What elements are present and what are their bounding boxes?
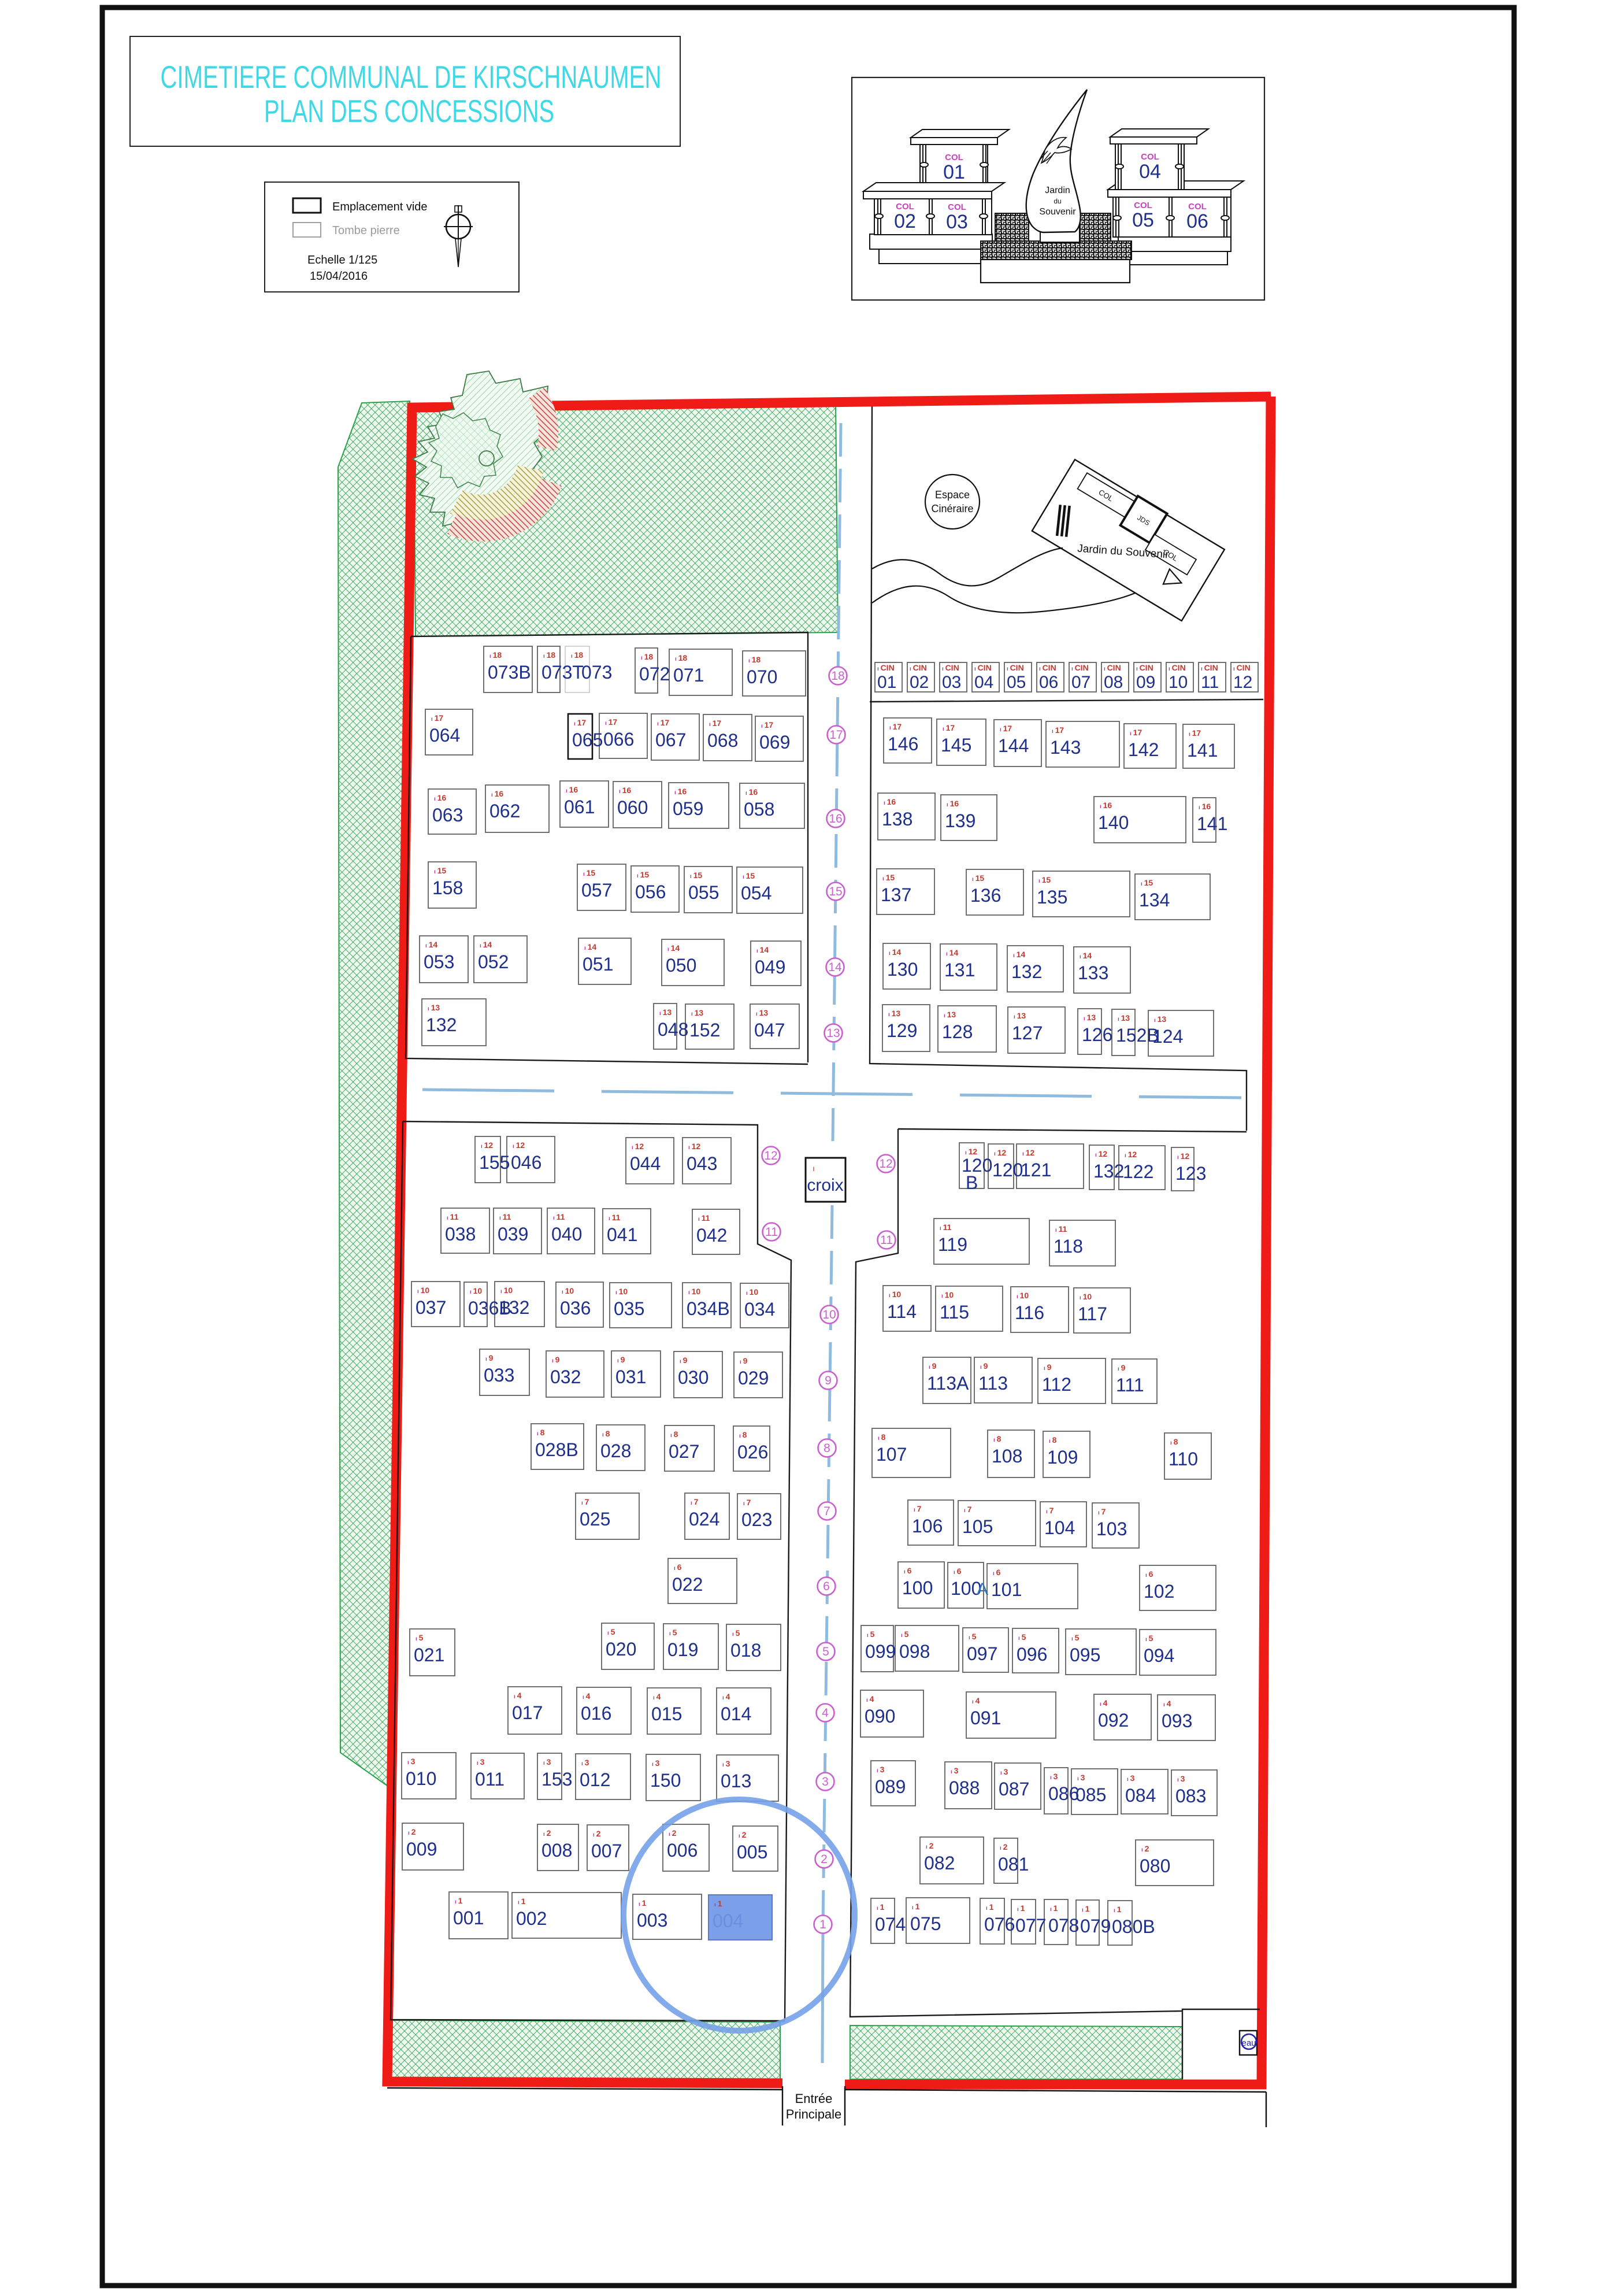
svg-text:021: 021: [414, 1645, 444, 1665]
svg-text:133: 133: [1078, 962, 1108, 983]
svg-text:08: 08: [1104, 673, 1123, 692]
svg-text:115: 115: [940, 1302, 969, 1323]
svg-text:050: 050: [666, 955, 696, 976]
svg-text:047: 047: [754, 1020, 785, 1040]
svg-text:12: 12: [1233, 673, 1252, 692]
svg-text:089: 089: [875, 1776, 906, 1797]
svg-text:103: 103: [1096, 1519, 1127, 1539]
svg-text:04: 04: [974, 673, 993, 692]
svg-text:042: 042: [696, 1225, 727, 1246]
svg-text:141: 141: [1197, 813, 1227, 834]
svg-text:012: 012: [580, 1769, 610, 1790]
svg-text:18: 18: [831, 669, 844, 683]
svg-text:018: 018: [730, 1640, 761, 1661]
svg-text:066: 066: [603, 729, 634, 750]
svg-text:142: 142: [1128, 739, 1159, 760]
svg-text:072: 072: [639, 664, 670, 684]
svg-text:11: 11: [1201, 673, 1219, 692]
svg-text:046: 046: [511, 1152, 541, 1173]
svg-text:11: 11: [765, 1225, 778, 1239]
svg-text:15/04/2016: 15/04/2016: [310, 270, 368, 283]
svg-text:116: 116: [1015, 1302, 1044, 1323]
svg-text:05: 05: [1007, 673, 1026, 692]
svg-text:145: 145: [941, 735, 971, 756]
svg-text:093: 093: [1162, 1710, 1192, 1731]
svg-text:6: 6: [823, 1580, 830, 1593]
svg-text:du: du: [1054, 197, 1061, 205]
svg-text:132: 132: [499, 1297, 529, 1318]
svg-text:14: 14: [828, 961, 842, 974]
svg-text:016: 016: [581, 1703, 611, 1724]
svg-text:095: 095: [1070, 1645, 1100, 1665]
svg-text:Jardin: Jardin: [1045, 186, 1070, 195]
svg-text:059: 059: [673, 798, 703, 819]
svg-text:153: 153: [541, 1769, 572, 1790]
svg-text:CIMETIERE COMMUNAL DE KIRSCHNA: CIMETIERE COMMUNAL DE KIRSCHNAUMEN: [161, 59, 662, 95]
svg-text:121: 121: [1021, 1160, 1051, 1180]
svg-text:092: 092: [1098, 1710, 1129, 1731]
svg-text:118: 118: [1054, 1236, 1083, 1257]
svg-text:B: B: [966, 1172, 978, 1193]
svg-text:15: 15: [829, 885, 842, 898]
svg-text:086: 086: [1048, 1783, 1079, 1804]
svg-text:060: 060: [617, 797, 648, 818]
svg-text:07: 07: [1071, 673, 1090, 692]
svg-text:028B: 028B: [535, 1439, 578, 1460]
svg-text:131: 131: [944, 960, 975, 980]
svg-text:038: 038: [445, 1224, 476, 1245]
svg-text:041: 041: [607, 1224, 637, 1245]
svg-text:074: 074: [875, 1914, 906, 1935]
svg-text:126: 126: [1082, 1024, 1112, 1045]
svg-text:006: 006: [667, 1840, 698, 1861]
svg-text:06: 06: [1039, 673, 1058, 692]
svg-text:080B: 080B: [1112, 1916, 1155, 1937]
svg-text:088: 088: [949, 1777, 980, 1798]
svg-text:128: 128: [942, 1021, 973, 1042]
svg-text:034: 034: [744, 1299, 775, 1320]
svg-text:138: 138: [882, 809, 912, 829]
svg-text:055: 055: [688, 882, 719, 903]
svg-text:5: 5: [822, 1645, 829, 1658]
svg-text:062: 062: [489, 801, 520, 821]
svg-text:112: 112: [1042, 1374, 1071, 1395]
svg-text:124: 124: [1152, 1026, 1183, 1047]
svg-text:129: 129: [886, 1020, 917, 1041]
svg-text:Souvenir: Souvenir: [1039, 207, 1076, 217]
svg-text:eau: eau: [1241, 2038, 1256, 2048]
svg-text:2: 2: [821, 1853, 828, 1866]
svg-text:098: 098: [899, 1641, 930, 1662]
svg-text:Espace: Espace: [935, 489, 970, 501]
svg-text:7: 7: [824, 1505, 830, 1518]
svg-text:014: 014: [721, 1704, 751, 1724]
svg-text:081: 081: [998, 1854, 1029, 1875]
svg-text:104: 104: [1044, 1517, 1075, 1538]
svg-text:051: 051: [583, 954, 613, 975]
svg-text:croix: croix: [807, 1176, 843, 1195]
svg-text:008: 008: [541, 1840, 572, 1861]
svg-text:01: 01: [943, 161, 965, 183]
svg-text:034B: 034B: [687, 1298, 730, 1319]
svg-text:9: 9: [825, 1374, 832, 1387]
svg-text:106: 106: [912, 1516, 943, 1536]
svg-text:10: 10: [1169, 673, 1188, 692]
svg-text:16: 16: [829, 812, 842, 825]
svg-text:120: 120: [992, 1160, 1023, 1180]
svg-text:057: 057: [581, 880, 612, 901]
svg-text:087: 087: [999, 1779, 1029, 1799]
svg-text:PLAN DES CONCESSIONS: PLAN DES CONCESSIONS: [264, 93, 554, 129]
svg-text:085: 085: [1075, 1784, 1106, 1805]
svg-text:Entrée: Entrée: [795, 2091, 833, 2106]
svg-text:043: 043: [687, 1153, 717, 1174]
svg-text:048: 048: [658, 1019, 688, 1040]
svg-text:025: 025: [580, 1509, 610, 1530]
svg-text:04: 04: [1139, 161, 1161, 183]
svg-text:130: 130: [887, 959, 918, 980]
svg-text:083: 083: [1175, 1786, 1206, 1806]
svg-text:039: 039: [498, 1224, 528, 1245]
svg-text:Emplacement vide: Emplacement vide: [332, 201, 428, 213]
svg-text:090: 090: [865, 1706, 895, 1727]
svg-text:12: 12: [879, 1157, 892, 1171]
svg-text:068: 068: [707, 730, 738, 751]
svg-text:03: 03: [942, 673, 961, 692]
svg-text:Echelle 1/125: Echelle 1/125: [307, 254, 377, 266]
svg-text:123: 123: [1175, 1163, 1206, 1184]
svg-text:064: 064: [429, 725, 460, 746]
svg-text:10: 10: [822, 1308, 836, 1321]
svg-text:Tombe pierre: Tombe pierre: [332, 224, 400, 237]
svg-text:049: 049: [755, 957, 785, 977]
svg-text:155: 155: [479, 1152, 510, 1173]
svg-text:024: 024: [689, 1509, 719, 1530]
svg-text:101: 101: [991, 1579, 1022, 1600]
svg-text:105: 105: [962, 1516, 993, 1537]
svg-text:096: 096: [1017, 1644, 1047, 1665]
svg-text:035: 035: [614, 1298, 644, 1319]
svg-text:8: 8: [824, 1442, 830, 1455]
svg-text:005: 005: [737, 1842, 767, 1862]
svg-text:002: 002: [516, 1908, 547, 1929]
svg-text:11: 11: [880, 1234, 893, 1247]
svg-text:019: 019: [667, 1639, 698, 1660]
svg-text:097: 097: [967, 1643, 997, 1664]
svg-text:122: 122: [1123, 1161, 1153, 1182]
svg-text:077: 077: [1015, 1915, 1046, 1936]
svg-text:102: 102: [1144, 1581, 1174, 1602]
svg-text:067: 067: [655, 729, 686, 750]
svg-text:013: 013: [721, 1771, 751, 1791]
svg-text:056: 056: [635, 882, 666, 902]
svg-text:070: 070: [747, 666, 777, 687]
svg-text:015: 015: [651, 1704, 682, 1724]
svg-text:031: 031: [615, 1367, 646, 1387]
svg-text:09: 09: [1136, 673, 1155, 692]
svg-text:022: 022: [672, 1574, 703, 1595]
svg-text:136: 136: [970, 885, 1001, 906]
svg-text:109: 109: [1047, 1447, 1078, 1468]
svg-text:114: 114: [887, 1301, 917, 1322]
svg-text:001: 001: [453, 1908, 484, 1928]
svg-text:004: 004: [713, 1910, 743, 1931]
svg-text:100: 100: [902, 1577, 933, 1598]
svg-text:073B: 073B: [488, 662, 531, 683]
svg-text:A: A: [977, 1580, 988, 1599]
svg-text:032: 032: [550, 1367, 581, 1387]
svg-text:037: 037: [416, 1297, 446, 1318]
svg-text:152: 152: [689, 1020, 720, 1040]
svg-text:084: 084: [1125, 1785, 1156, 1806]
svg-text:044: 044: [630, 1153, 661, 1174]
svg-text:020: 020: [606, 1639, 636, 1660]
svg-text:029: 029: [738, 1368, 769, 1388]
svg-text:113: 113: [978, 1373, 1008, 1394]
svg-text:111: 111: [1116, 1375, 1144, 1395]
svg-text:073: 073: [581, 662, 612, 683]
svg-text:117: 117: [1078, 1303, 1107, 1324]
svg-text:107: 107: [876, 1444, 907, 1465]
svg-text:027: 027: [669, 1441, 699, 1462]
svg-text:033: 033: [484, 1365, 514, 1386]
svg-text:02: 02: [910, 673, 929, 692]
svg-text:053: 053: [424, 951, 454, 972]
svg-text:023: 023: [741, 1509, 772, 1530]
svg-text:144: 144: [998, 735, 1029, 756]
svg-text:140: 140: [1098, 812, 1129, 833]
svg-text:010: 010: [406, 1768, 436, 1789]
svg-text:137: 137: [881, 884, 911, 905]
svg-text:007: 007: [591, 1840, 622, 1861]
svg-text:069: 069: [759, 732, 790, 753]
svg-text:Cinéraire: Cinéraire: [931, 503, 973, 514]
svg-text:ı: ı: [813, 1164, 815, 1173]
svg-text:063: 063: [432, 805, 463, 825]
svg-text:108: 108: [992, 1446, 1022, 1467]
svg-text:080: 080: [1140, 1856, 1170, 1876]
svg-text:06: 06: [1186, 210, 1208, 232]
svg-text:05: 05: [1132, 209, 1154, 231]
svg-text:091: 091: [970, 1708, 1001, 1728]
svg-text:03: 03: [946, 211, 968, 233]
svg-text:134: 134: [1139, 890, 1170, 910]
svg-text:003: 003: [637, 1910, 667, 1931]
svg-text:13: 13: [826, 1027, 840, 1040]
svg-text:058: 058: [744, 799, 774, 820]
svg-text:071: 071: [673, 665, 704, 686]
svg-text:132: 132: [1093, 1161, 1124, 1182]
svg-text:127: 127: [1012, 1023, 1043, 1043]
svg-text:036: 036: [560, 1298, 591, 1319]
svg-text:073T: 073T: [541, 662, 584, 683]
svg-text:075: 075: [910, 1913, 941, 1934]
svg-text:054: 054: [741, 883, 771, 903]
svg-text:011: 011: [475, 1769, 505, 1790]
svg-text:030: 030: [678, 1367, 709, 1388]
svg-text:1: 1: [819, 1918, 826, 1931]
svg-text:052: 052: [478, 951, 509, 972]
svg-text:094: 094: [1144, 1645, 1174, 1666]
svg-text:078: 078: [1048, 1915, 1079, 1936]
svg-text:3: 3: [822, 1775, 829, 1788]
svg-text:113A: 113A: [927, 1373, 969, 1394]
svg-text:02: 02: [894, 210, 916, 232]
svg-text:110: 110: [1169, 1449, 1198, 1469]
svg-text:139: 139: [945, 810, 975, 831]
svg-text:026: 026: [737, 1442, 768, 1462]
svg-text:141: 141: [1187, 740, 1218, 761]
svg-text:079: 079: [1080, 1916, 1111, 1936]
svg-text:017: 017: [512, 1702, 543, 1723]
svg-text:135: 135: [1037, 887, 1067, 908]
svg-text:Principale: Principale: [786, 2107, 842, 2121]
svg-text:143: 143: [1050, 737, 1081, 758]
svg-text:12: 12: [764, 1149, 777, 1162]
svg-text:17: 17: [829, 728, 843, 742]
svg-text:082: 082: [924, 1853, 955, 1873]
svg-text:040: 040: [551, 1224, 582, 1245]
svg-text:065: 065: [572, 729, 603, 750]
svg-text:061: 061: [564, 797, 595, 817]
svg-text:158: 158: [432, 877, 463, 898]
svg-text:150: 150: [650, 1770, 681, 1791]
svg-text:009: 009: [406, 1839, 437, 1860]
svg-text:146: 146: [888, 734, 918, 754]
svg-text:4: 4: [822, 1706, 829, 1720]
svg-text:119: 119: [938, 1234, 967, 1255]
svg-text:076: 076: [984, 1914, 1015, 1935]
svg-text:132: 132: [1011, 961, 1042, 982]
svg-text:028: 028: [600, 1440, 631, 1461]
svg-text:01: 01: [877, 673, 896, 692]
svg-text:132: 132: [426, 1014, 457, 1035]
svg-text:099: 099: [865, 1641, 896, 1662]
